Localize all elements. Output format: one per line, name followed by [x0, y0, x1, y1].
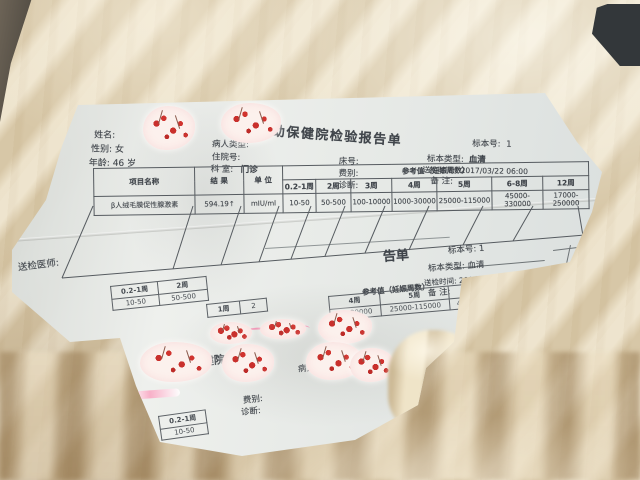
- under-serum: 血清: [505, 305, 524, 316]
- week-header: 0.2-1周: [283, 179, 316, 193]
- sheet-edge: [480, 325, 558, 333]
- cherry-sticker: [222, 344, 274, 382]
- name-label: 姓名:: [94, 131, 115, 140]
- ref-value: 2: [239, 298, 267, 314]
- under-sample-fragment: 本号: 1: [505, 317, 534, 328]
- week-header: 3周: [351, 178, 392, 193]
- table-body-lines: [50, 206, 595, 291]
- bottom-fee-label: 费别:: [243, 395, 264, 406]
- sample-no-value: 1: [506, 141, 512, 150]
- under-title-fragment: 告单: [383, 249, 410, 264]
- under-extra-cells: 1周 2: [206, 298, 268, 318]
- gender-value: 女: [115, 146, 124, 155]
- under-sample-no-right: 标本号: 1: [515, 289, 552, 301]
- col-result-header: 结 果: [194, 166, 243, 195]
- gender-label: 性别:: [91, 145, 112, 154]
- col-unit-header: 单 位: [243, 166, 282, 195]
- dark-object: [592, 4, 640, 66]
- under-date-fragment: /03/22 06:00: [503, 336, 552, 348]
- bottom-ref-table: 0.2-1周 10-50: [158, 409, 209, 440]
- week-header: 4周: [392, 178, 437, 193]
- cherry-sticker: [140, 342, 212, 382]
- sheet-edge: [465, 284, 565, 294]
- cherry-sticker: [318, 310, 372, 344]
- week-header: 1周: [207, 301, 241, 317]
- week-header: 6-8周: [492, 176, 543, 191]
- photo-of-lab-report: 妇幼保健院检验报告单 姓名: 性别: 女 年龄: 46 岁 病人类型: 住院号:…: [0, 0, 640, 480]
- sheet-edge: [578, 248, 593, 286]
- week-header: 6-8周: [448, 281, 506, 299]
- week-header: 12周: [543, 176, 589, 191]
- dark-floor-corner: [0, 0, 54, 122]
- cherry-sticker: [210, 322, 252, 344]
- bottom-diagnosis-label: 诊断:: [241, 407, 262, 418]
- sample-no-label: 标本号:: [472, 140, 501, 149]
- cherry-sticker: [260, 319, 306, 339]
- col-item-header: 项目名称: [94, 167, 195, 196]
- under-sample-no: 标本号: 1: [448, 245, 485, 256]
- week-header: 5周: [437, 177, 492, 192]
- admission-label: 住院号:: [212, 154, 241, 163]
- week-header: 2周: [316, 179, 351, 193]
- under-serum-stamp: 血清: [565, 319, 584, 331]
